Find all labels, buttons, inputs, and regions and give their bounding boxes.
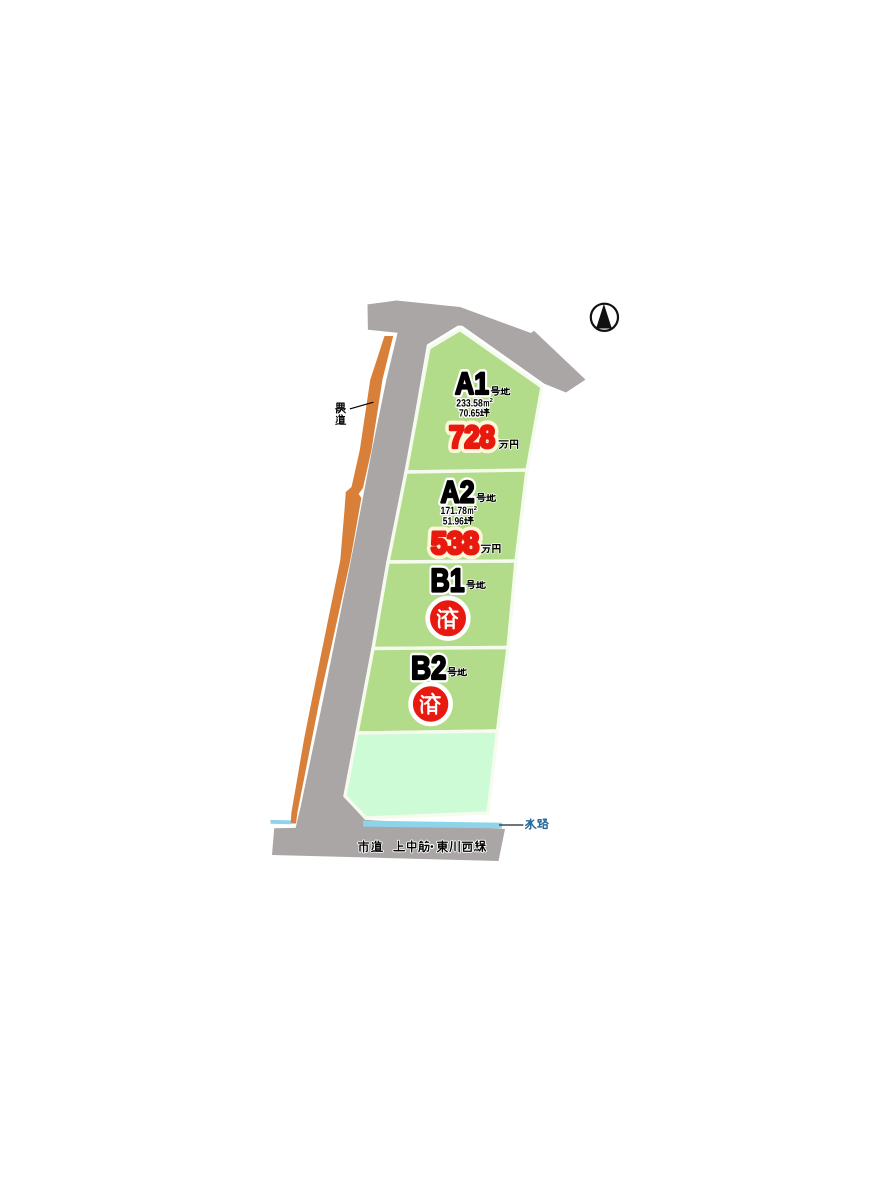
svg-text:A2: A2: [441, 474, 475, 509]
svg-text:538: 538: [431, 525, 479, 560]
svg-text:B1: B1: [431, 561, 465, 598]
svg-text:A1: A1: [455, 366, 489, 401]
svg-text:70.65: 70.65: [459, 407, 480, 419]
svg-text:2: 2: [490, 397, 493, 404]
svg-text:2: 2: [474, 505, 477, 512]
svg-text:B2: B2: [411, 649, 447, 686]
svg-text:728: 728: [449, 420, 495, 455]
